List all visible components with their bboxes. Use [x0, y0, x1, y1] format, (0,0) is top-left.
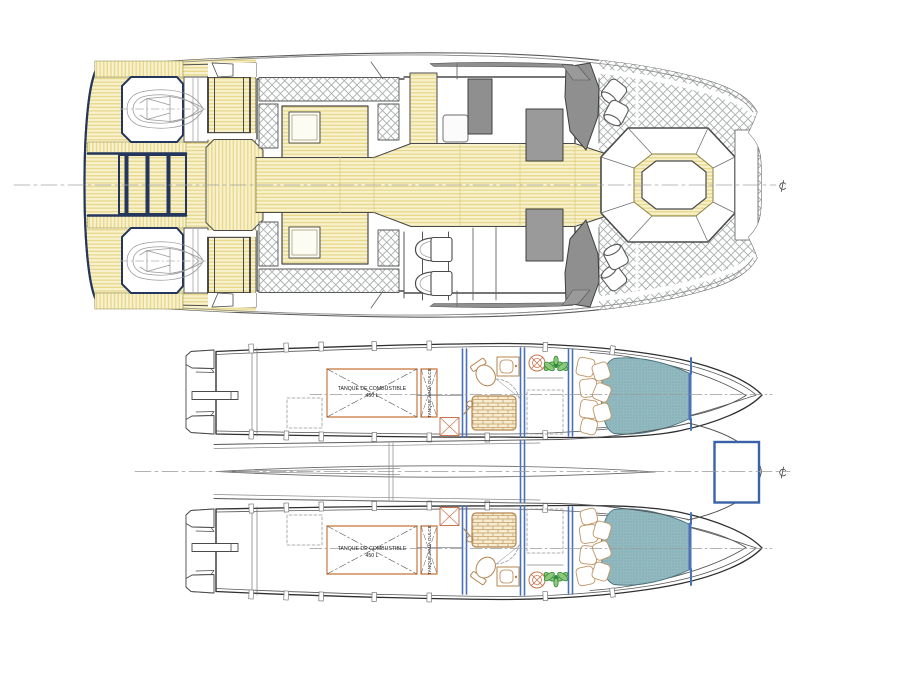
svg-text:TANQUE AGUA DULCE: TANQUE AGUA DULCE	[427, 525, 432, 574]
svg-text:TANQUE DE COMBUSTIBLE: TANQUE DE COMBUSTIBLE	[338, 546, 407, 552]
svg-text:450 L: 450 L	[366, 393, 379, 399]
svg-text:450 L: 450 L	[366, 553, 379, 559]
svg-text:TANQUE DE COMBUSTIBLE: TANQUE DE COMBUSTIBLE	[338, 386, 407, 392]
svg-text:TANQUE AGUA DULCE: TANQUE AGUA DULCE	[427, 368, 432, 417]
